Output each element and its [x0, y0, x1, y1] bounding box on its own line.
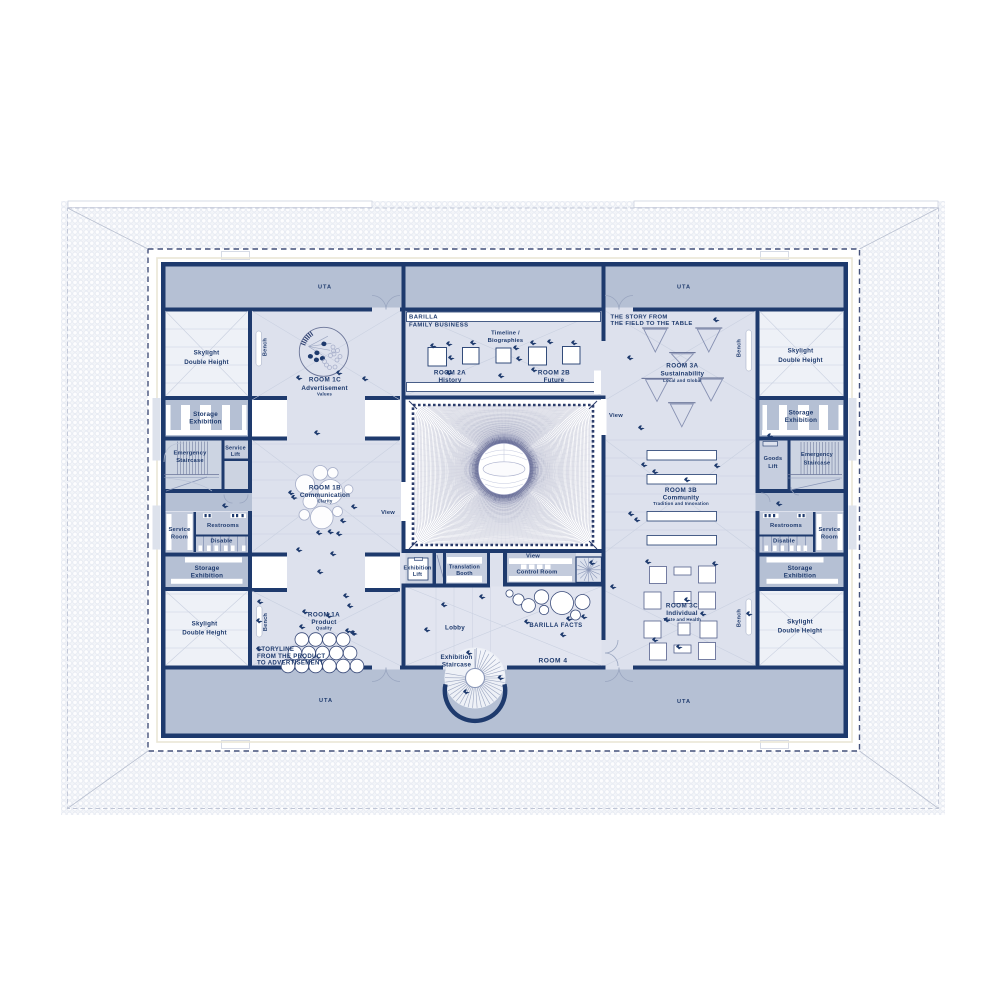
svg-text:UTA: UTA — [319, 698, 333, 704]
svg-text:Bench: Bench — [737, 339, 743, 357]
svg-text:Exhibition: Exhibition — [785, 417, 817, 424]
svg-text:Local and Global: Local and Global — [663, 378, 702, 383]
svg-text:Room: Room — [821, 535, 838, 541]
svg-text:Timeline /: Timeline / — [491, 331, 520, 337]
svg-text:ROOM 4: ROOM 4 — [538, 658, 567, 665]
svg-text:Double Height: Double Height — [778, 357, 823, 364]
svg-text:View: View — [609, 413, 623, 419]
svg-text:Disable: Disable — [773, 539, 796, 545]
svg-text:Control Room: Control Room — [516, 570, 557, 576]
svg-text:Storage: Storage — [788, 565, 813, 572]
svg-text:Skylight: Skylight — [787, 619, 813, 626]
svg-text:UTA: UTA — [677, 285, 691, 291]
svg-text:Disable: Disable — [210, 539, 233, 545]
svg-text:BARILLA FACTS: BARILLA FACTS — [529, 623, 582, 629]
svg-text:ROOM 1B: ROOM 1B — [309, 485, 341, 492]
svg-text:Staircase: Staircase — [176, 458, 204, 464]
svg-text:ROOM 3C: ROOM 3C — [666, 603, 698, 610]
svg-text:Biographies: Biographies — [488, 338, 524, 344]
svg-text:Exhibition: Exhibition — [441, 654, 473, 661]
svg-text:Values: Values — [317, 392, 332, 397]
svg-text:THE STORY FROM: THE STORY FROM — [611, 315, 668, 321]
svg-text:Storage: Storage — [195, 565, 220, 572]
svg-text:Restrooms: Restrooms — [770, 523, 802, 529]
svg-text:Restrooms: Restrooms — [207, 523, 239, 529]
svg-text:Lift: Lift — [413, 572, 422, 578]
svg-text:ROOM 1C: ROOM 1C — [309, 376, 341, 383]
svg-text:Staircase: Staircase — [804, 461, 831, 467]
svg-text:Double Height: Double Height — [184, 359, 229, 366]
svg-text:View: View — [381, 510, 395, 516]
svg-text:Bench: Bench — [737, 609, 743, 627]
svg-text:Emergency: Emergency — [173, 451, 207, 457]
svg-text:Tradition and Innovation: Tradition and Innovation — [653, 501, 709, 506]
svg-text:Exhibition: Exhibition — [191, 573, 223, 580]
svg-text:TO ADVERTISEMENT: TO ADVERTISEMENT — [257, 660, 324, 667]
svg-text:Bench: Bench — [263, 613, 269, 631]
svg-text:Bench: Bench — [263, 338, 269, 356]
svg-text:Exhibition: Exhibition — [784, 573, 816, 580]
svg-text:Service: Service — [818, 527, 841, 533]
svg-text:Sustainability: Sustainability — [661, 370, 705, 377]
svg-text:Booth: Booth — [456, 571, 473, 577]
svg-text:Skylight: Skylight — [788, 348, 814, 355]
svg-text:Double Height: Double Height — [182, 630, 227, 637]
svg-text:Emergency: Emergency — [801, 452, 834, 458]
svg-text:Storage: Storage — [193, 411, 218, 418]
svg-text:Translation: Translation — [449, 565, 480, 571]
svg-text:Lift: Lift — [768, 464, 778, 470]
svg-text:Clarity: Clarity — [317, 498, 332, 503]
svg-text:ROOM 3A: ROOM 3A — [666, 362, 698, 369]
svg-text:Individual: Individual — [666, 610, 697, 617]
svg-text:Lobby: Lobby — [445, 625, 465, 632]
svg-text:Skylight: Skylight — [194, 350, 220, 357]
svg-text:ROOM 1A: ROOM 1A — [308, 612, 340, 619]
svg-text:Exhibition: Exhibition — [403, 566, 431, 572]
svg-text:Goods: Goods — [764, 456, 783, 462]
svg-text:View: View — [526, 554, 540, 560]
svg-text:Service: Service — [168, 527, 191, 533]
svg-text:Storage: Storage — [789, 410, 814, 417]
svg-text:Service: Service — [225, 446, 246, 452]
svg-text:Taste and Health: Taste and Health — [663, 617, 701, 622]
svg-text:UTA: UTA — [318, 285, 332, 291]
svg-text:Room: Room — [171, 535, 188, 541]
svg-text:UTA: UTA — [677, 699, 691, 705]
svg-text:Lift: Lift — [231, 452, 240, 458]
svg-text:Quality: Quality — [316, 626, 333, 631]
svg-text:ROOM 3B: ROOM 3B — [665, 487, 697, 494]
svg-text:THE FIELD TO THE TABLE: THE FIELD TO THE TABLE — [611, 321, 693, 327]
svg-text:Skylight: Skylight — [192, 621, 218, 628]
svg-text:FAMILY BUSINESS: FAMILY BUSINESS — [409, 322, 468, 328]
svg-text:Double Height: Double Height — [778, 628, 823, 635]
svg-text:Exhibition: Exhibition — [189, 419, 221, 426]
svg-text:Staircase: Staircase — [442, 661, 472, 668]
svg-text:ROOM 2B: ROOM 2B — [538, 370, 570, 377]
svg-text:BARILLA: BARILLA — [409, 315, 438, 321]
